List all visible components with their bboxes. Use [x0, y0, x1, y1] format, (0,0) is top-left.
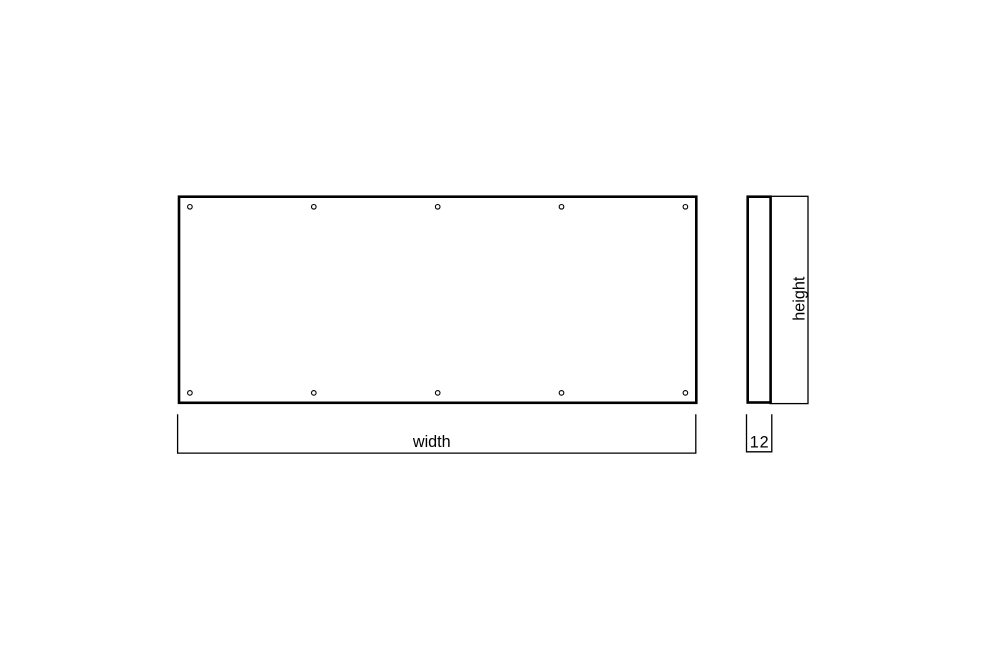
svg-text:height: height [791, 276, 809, 321]
svg-text:width: width [412, 433, 451, 451]
svg-text:12: 12 [750, 433, 770, 451]
